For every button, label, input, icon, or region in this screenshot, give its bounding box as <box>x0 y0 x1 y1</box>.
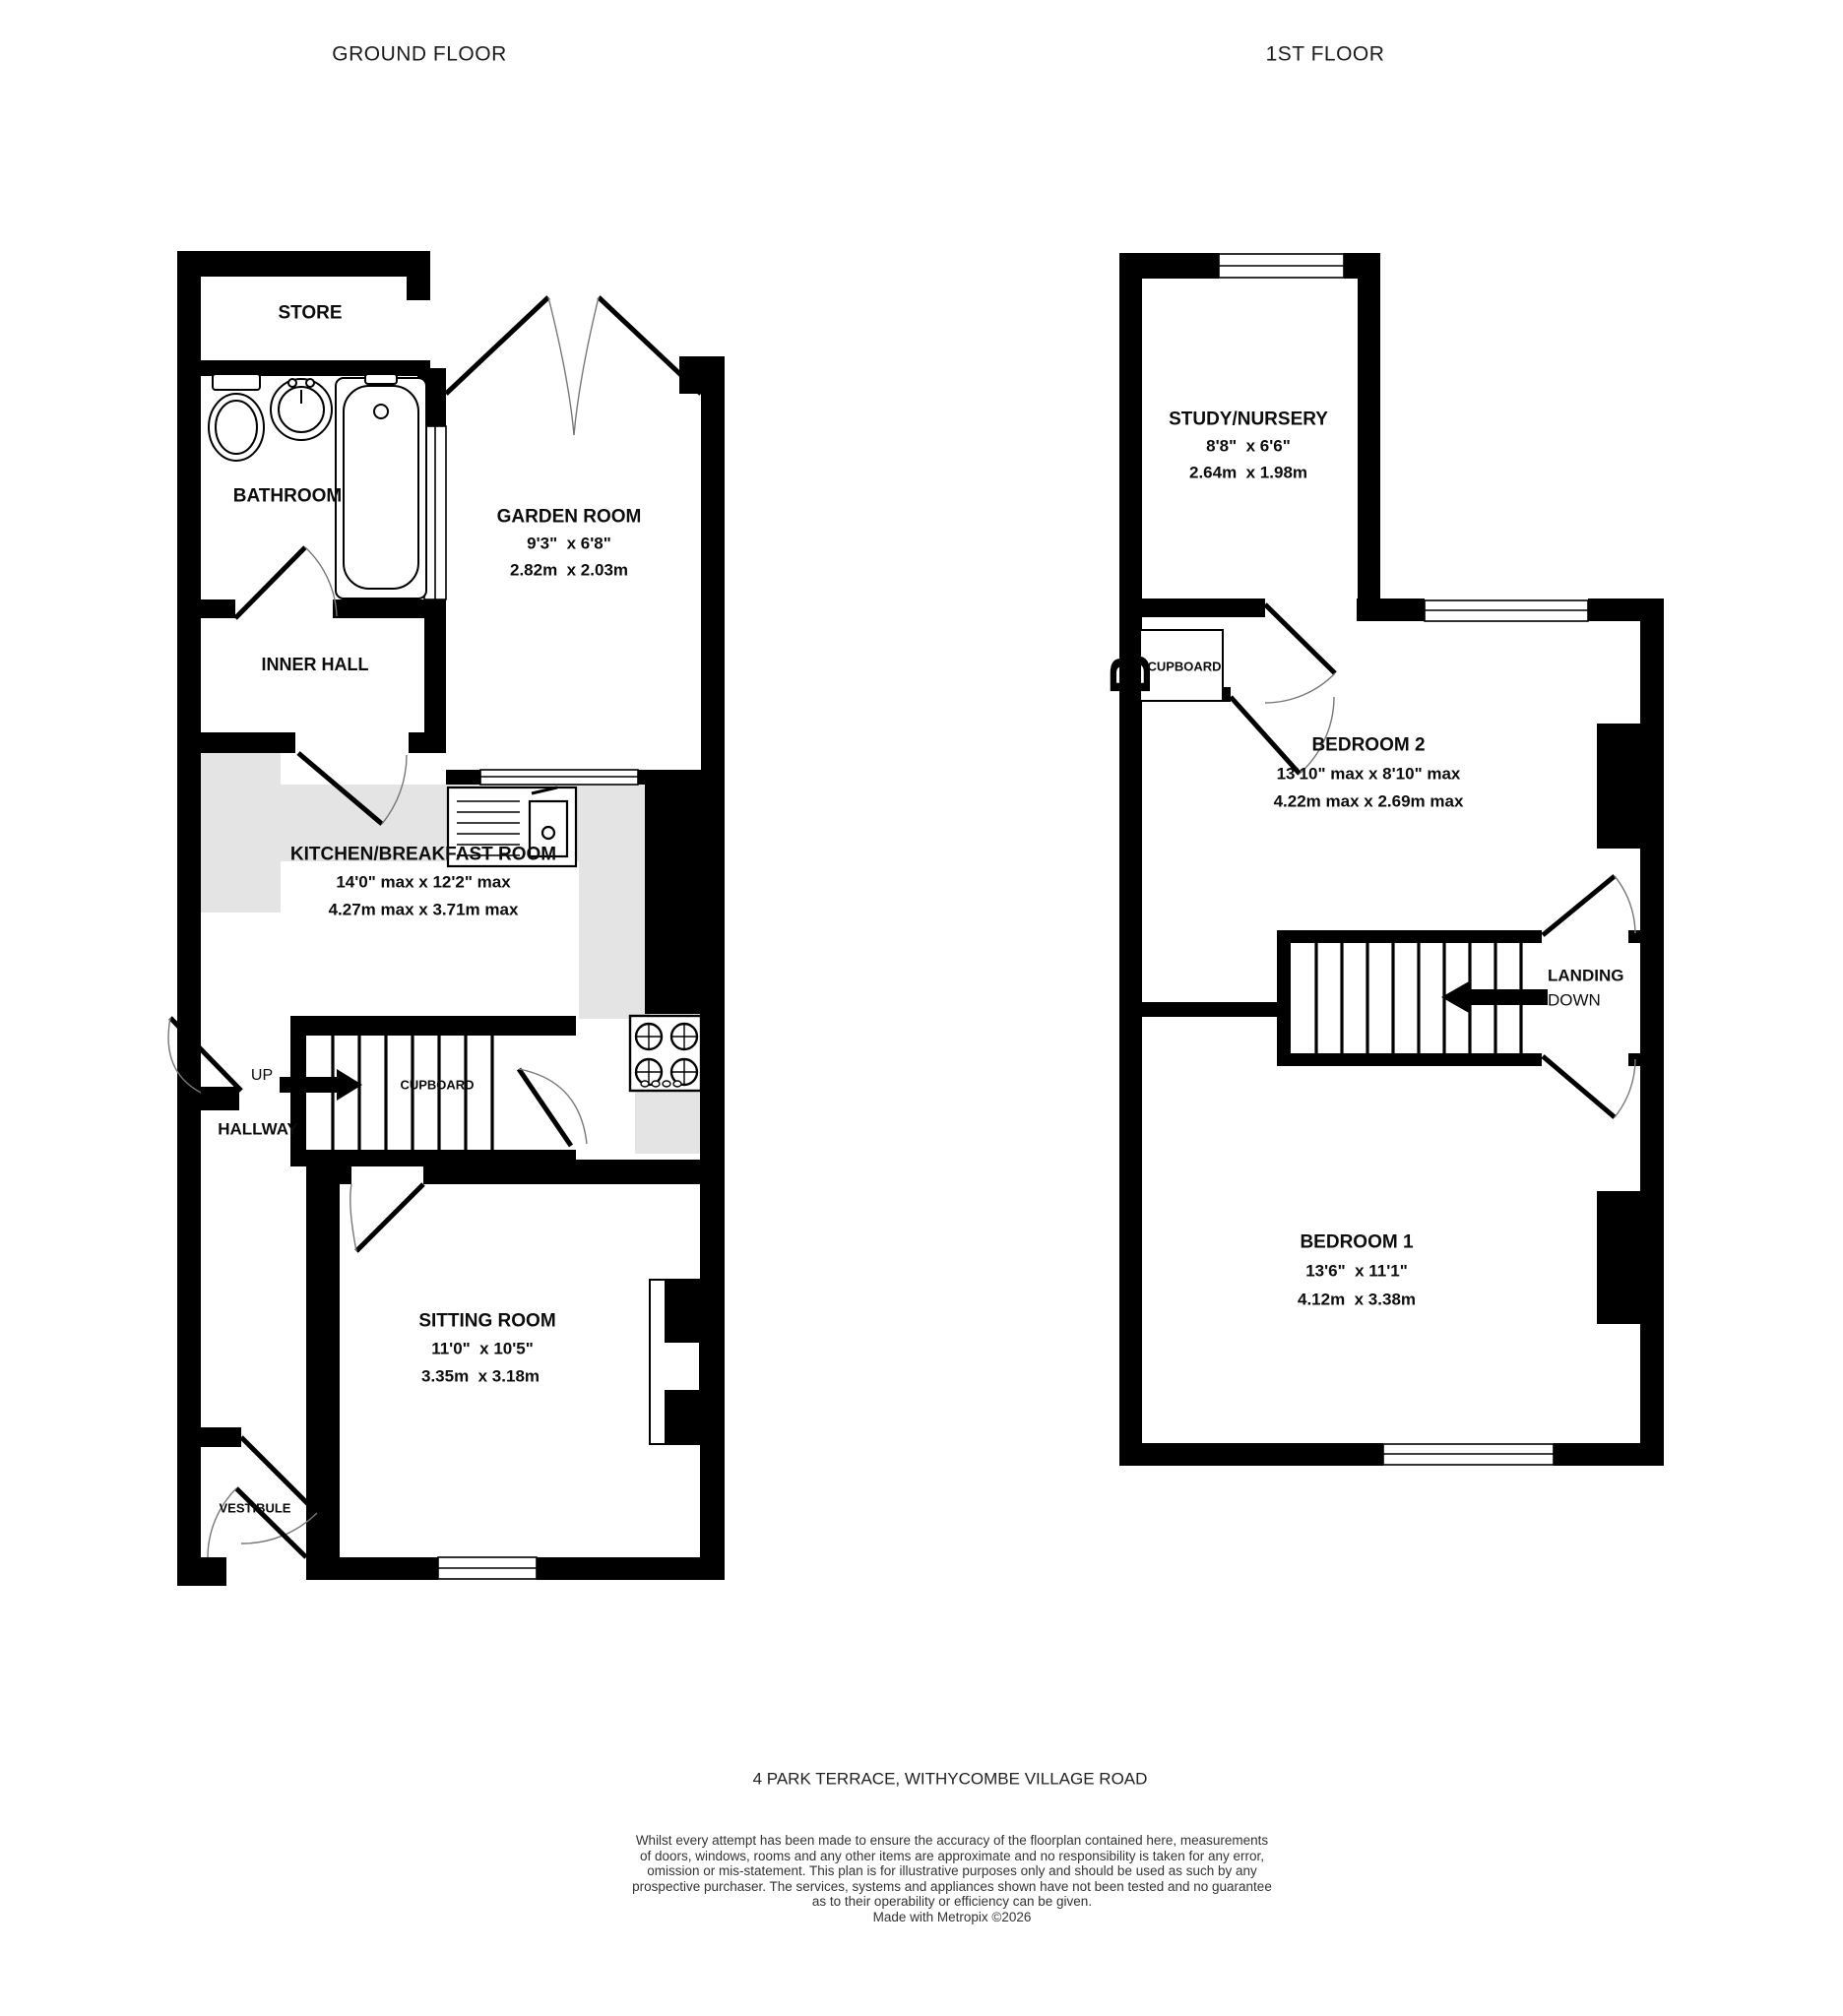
floorplan-page: B <box>0 0 1843 2016</box>
made-with-metropix: Made with Metropix ©2026 <box>519 1910 1385 1925</box>
understairs-cupboard-door-icon <box>519 1069 587 1146</box>
room-label-garden-room: GARDEN ROOM <box>497 508 642 527</box>
first-doors <box>1231 604 1635 1117</box>
down-label: DOWN <box>1548 992 1601 1009</box>
room-dims-metric: 2.64m x 1.98m <box>1189 465 1307 481</box>
cupboard-label-ground: CUPBOARD <box>400 1079 474 1092</box>
disclaimer-line: Whilst every attempt has been made to en… <box>519 1833 1385 1849</box>
disclaimer-line: prospective purchaser. The services, sys… <box>519 1879 1385 1895</box>
room-label-bathroom: BATHROOM <box>233 487 342 506</box>
ground-floor-title: GROUND FLOOR <box>332 44 507 65</box>
room-dims-metric: 3.35m x 3.18m <box>421 1368 540 1385</box>
cupboard-label-first: CUPBOARD <box>1147 661 1221 673</box>
room-label-hallway: HALLWAY <box>218 1121 298 1138</box>
first-floor-title: 1ST FLOOR <box>1266 44 1385 65</box>
disclaimer-line: omission or mis-statement. This plan is … <box>519 1863 1385 1879</box>
landing-label: LANDING <box>1548 968 1623 984</box>
first-windows <box>1219 254 1588 1465</box>
disclaimer: Whilst every attempt has been made to en… <box>519 1833 1385 1924</box>
window-icon <box>1219 254 1344 278</box>
room-label-study: STUDY/NURSERY <box>1169 410 1328 429</box>
room-label-inner-hall: INNER HALL <box>262 656 369 673</box>
room-label-vestibule: VESTIBULE <box>220 1502 291 1515</box>
room-label-kitchen: KITCHEN/BREAKFAST ROOM <box>290 846 556 864</box>
study-door-icon <box>1265 604 1335 703</box>
room-dims-imperial: 13'6" x 11'1" <box>1305 1263 1408 1280</box>
window-icon <box>438 1557 537 1579</box>
window-icon <box>1425 600 1588 621</box>
property-address: 4 PARK TERRACE, WITHYCOMBE VILLAGE ROAD <box>753 1771 1148 1788</box>
room-dims-metric: 2.82m x 2.03m <box>510 562 628 579</box>
sitting-room-door-icon <box>350 1184 423 1251</box>
room-dims-metric: 4.22m max x 2.69m max <box>1274 793 1464 810</box>
toilet-icon <box>209 374 264 461</box>
room-label-sitting-room: SITTING ROOM <box>418 1312 555 1331</box>
disclaimer-line: of doors, windows, rooms and any other i… <box>519 1849 1385 1864</box>
room-label-bedroom1: BEDROOM 1 <box>1300 1233 1413 1252</box>
basin-icon <box>271 379 332 440</box>
room-dims-imperial: 11'0" x 10'5" <box>431 1341 534 1357</box>
up-label: UP <box>251 1068 273 1084</box>
window-icon <box>1383 1444 1554 1465</box>
stairs-up <box>280 1036 492 1150</box>
front-door-icon <box>208 1488 306 1557</box>
bedroom1-landing-door-icon <box>1543 1056 1635 1117</box>
disclaimer-line: as to their operability or efficiency ca… <box>519 1894 1385 1910</box>
stairs-down <box>1316 943 1548 1053</box>
window-icon <box>424 426 446 599</box>
room-dims-imperial: 13'10" max x 8'10" max <box>1277 766 1461 783</box>
room-dims-metric: 4.12m x 3.38m <box>1298 1291 1416 1308</box>
first-floor-plan: B <box>1099 253 1664 1466</box>
hob-icon <box>630 1016 701 1091</box>
room-dims-metric: 4.27m max x 3.71m max <box>329 902 519 918</box>
room-dims-imperial: 14'0" max x 12'2" max <box>336 874 510 891</box>
room-dims-imperial: 9'3" x 6'8" <box>527 535 611 552</box>
room-label-bedroom2: BEDROOM 2 <box>1311 736 1425 755</box>
bathtub-icon <box>336 374 426 598</box>
bedroom2-landing-door-icon <box>1543 876 1635 935</box>
first-walls <box>1119 253 1664 1466</box>
window-icon <box>480 770 638 785</box>
bathroom-door-icon <box>235 547 337 618</box>
room-dims-imperial: 8'8" x 6'6" <box>1206 438 1291 455</box>
room-label-store: STORE <box>278 304 342 323</box>
garden-room-doors-icon <box>446 297 701 435</box>
